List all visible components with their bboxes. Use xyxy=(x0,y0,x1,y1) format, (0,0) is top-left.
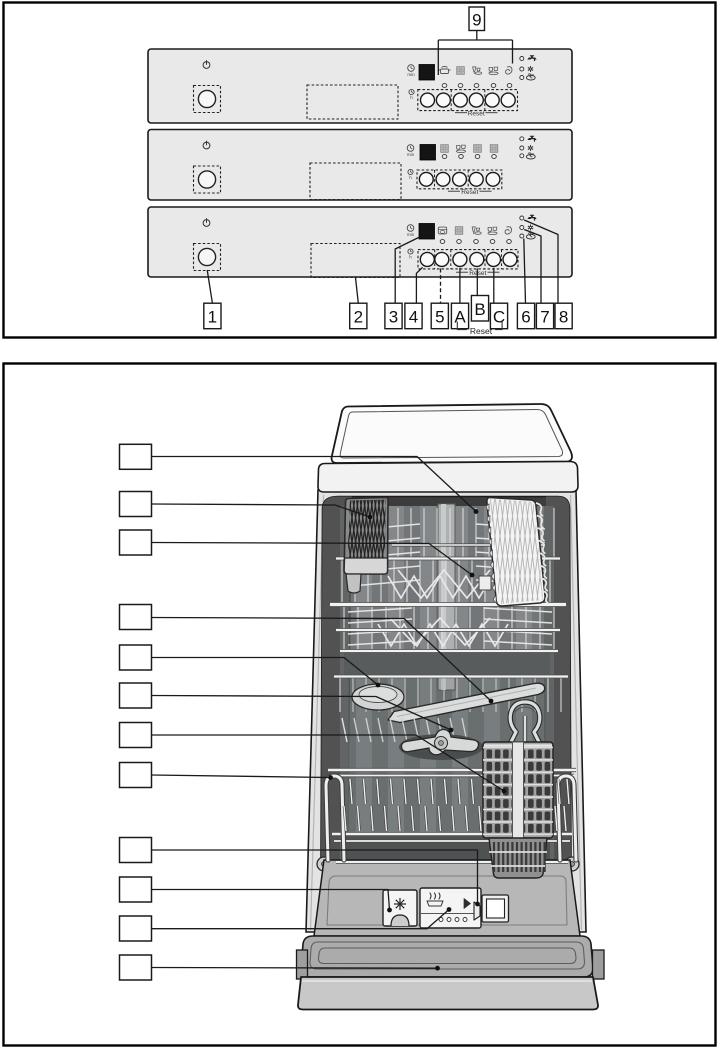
svg-text:A: A xyxy=(454,308,466,327)
svg-text:5: 5 xyxy=(435,308,444,327)
svg-text:B: B xyxy=(474,300,485,319)
svg-text:Reset: Reset xyxy=(468,110,485,117)
svg-text:7: 7 xyxy=(540,308,549,327)
svg-text:C: C xyxy=(493,308,505,327)
svg-text:4: 4 xyxy=(409,308,418,327)
svg-text:Reset: Reset xyxy=(461,189,478,196)
svg-text:9: 9 xyxy=(472,11,481,30)
svg-text:Reset: Reset xyxy=(470,326,493,336)
svg-text:6: 6 xyxy=(521,308,530,327)
svg-text:3: 3 xyxy=(389,308,398,327)
svg-text:2: 2 xyxy=(354,308,363,327)
svg-text:8: 8 xyxy=(559,308,568,327)
svg-text:min: min xyxy=(407,232,415,237)
svg-text:min: min xyxy=(407,152,415,157)
svg-text:1: 1 xyxy=(208,308,217,327)
svg-text:min: min xyxy=(407,72,415,77)
